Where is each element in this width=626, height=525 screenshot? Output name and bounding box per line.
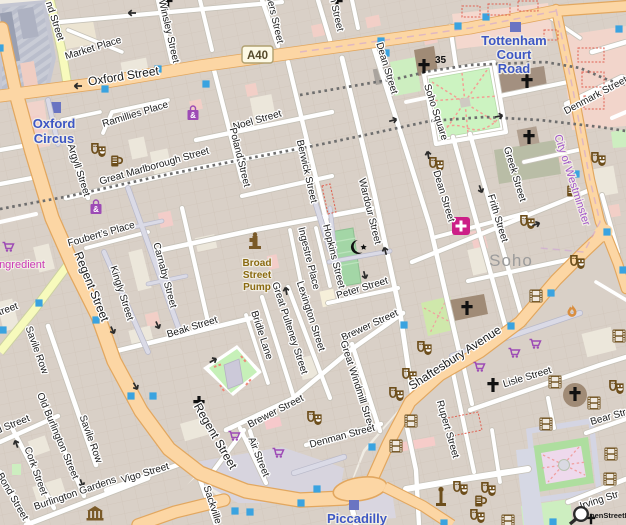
svg-text:35: 35 (435, 55, 447, 66)
svg-text:penStreetMap: penStreetMap (590, 511, 626, 520)
svg-text:Road: Road (498, 61, 531, 76)
svg-text:Street: Street (243, 270, 272, 281)
svg-text:Soho: Soho (489, 251, 533, 270)
svg-text:Piccadilly: Piccadilly (327, 511, 388, 525)
svg-text:Oxford: Oxford (33, 116, 76, 131)
svg-text:ngredient: ngredient (0, 259, 45, 271)
svg-text:Circus: Circus (34, 131, 74, 146)
svg-text:Court: Court (497, 47, 532, 62)
svg-text:Broad: Broad (243, 258, 272, 269)
svg-text:A40: A40 (247, 50, 268, 62)
svg-text:Tottenham: Tottenham (481, 33, 546, 48)
svg-text:Pump: Pump (243, 282, 271, 293)
